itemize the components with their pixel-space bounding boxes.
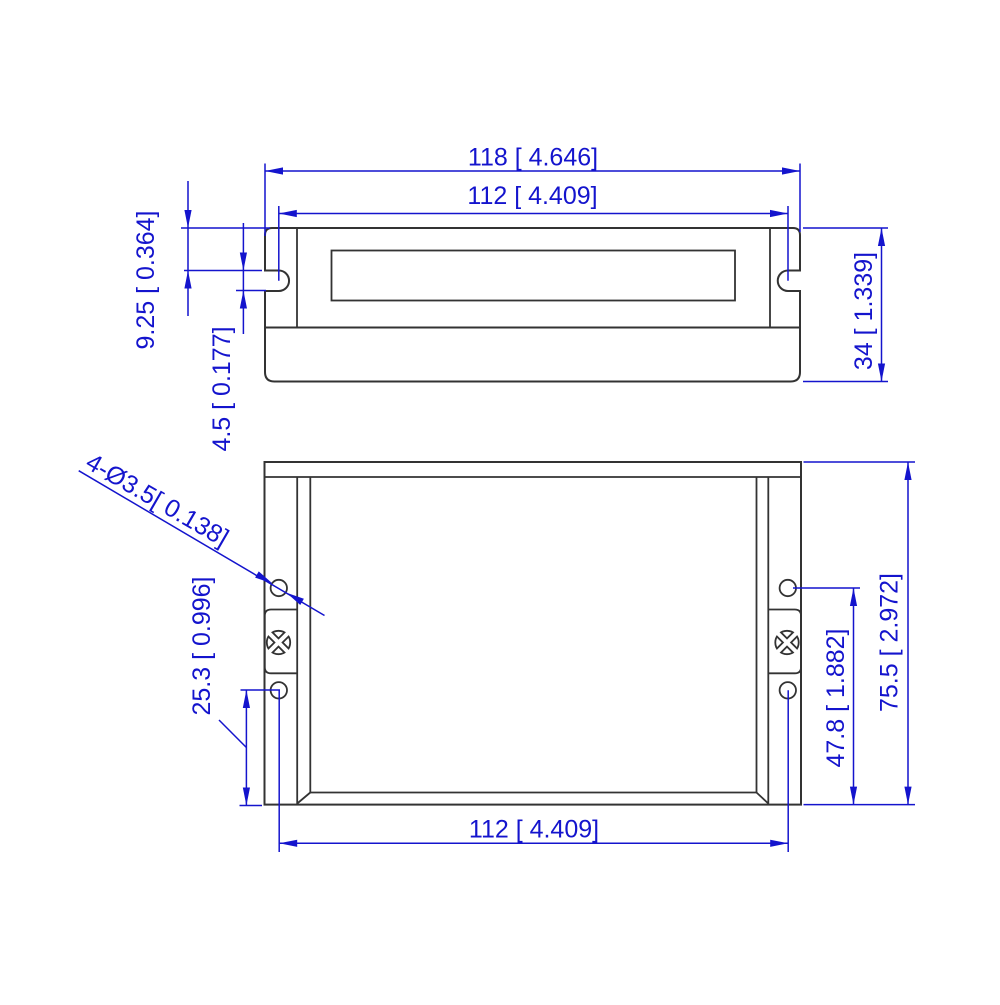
svg-text:34 [ 1.339]: 34 [ 1.339] — [850, 252, 878, 370]
svg-text:112 [ 4.409]: 112 [ 4.409] — [467, 182, 597, 210]
svg-text:118 [ 4.646]: 118 [ 4.646] — [468, 144, 598, 172]
svg-text:112 [ 4.409]: 112 [ 4.409] — [469, 816, 599, 844]
svg-text:25.3 [ 0.996]: 25.3 [ 0.996] — [188, 576, 216, 715]
svg-text:4.5 [ 0.177]: 4.5 [ 0.177] — [208, 326, 236, 451]
svg-text:9.25 [ 0.364]: 9.25 [ 0.364] — [132, 210, 160, 349]
svg-text:75.5 [ 2.972]: 75.5 [ 2.972] — [876, 573, 904, 712]
svg-text:47.8 [ 1.882]: 47.8 [ 1.882] — [822, 628, 850, 767]
